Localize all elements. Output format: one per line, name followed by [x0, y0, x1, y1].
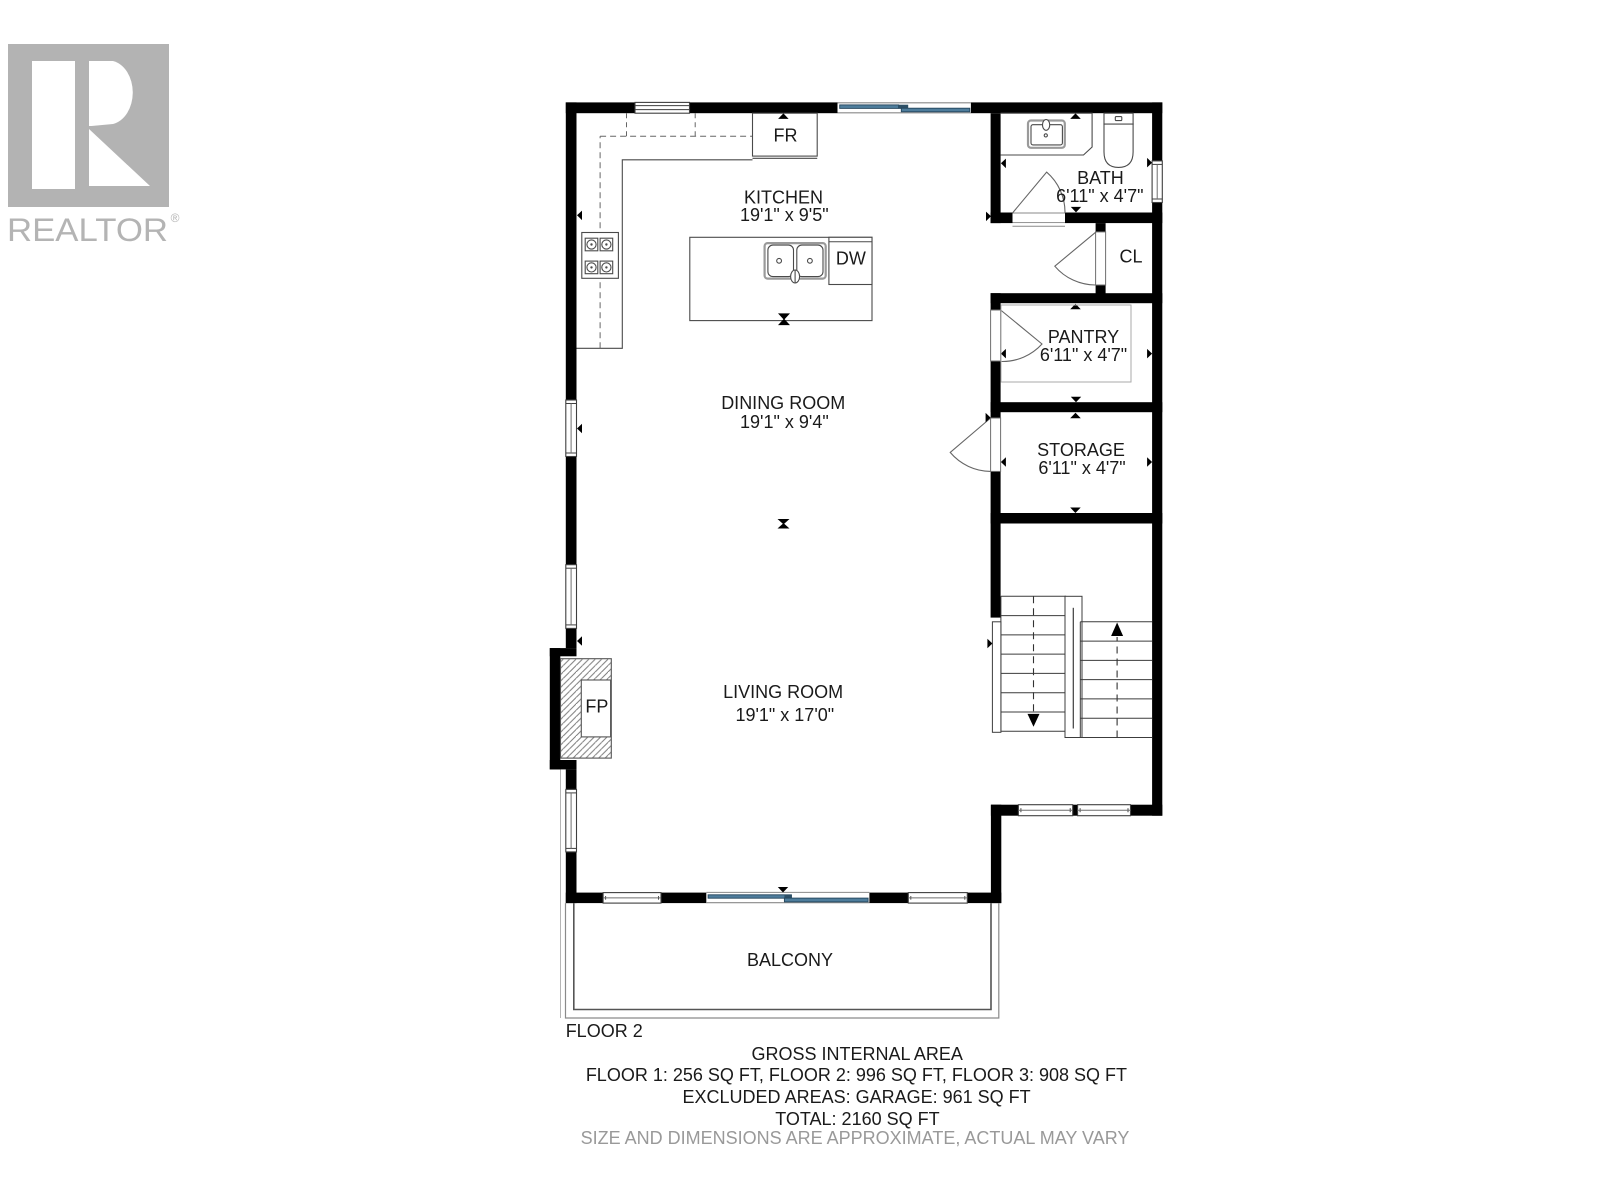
svg-text:REALTOR: REALTOR — [7, 212, 168, 248]
svg-text:FR: FR — [774, 125, 798, 145]
svg-text:19'1" x 9'4": 19'1" x 9'4" — [740, 412, 829, 432]
svg-text:FLOOR 2: FLOOR 2 — [566, 1021, 643, 1041]
svg-text:19'1" x 17'0": 19'1" x 17'0" — [735, 705, 834, 725]
svg-text:BALCONY: BALCONY — [747, 950, 833, 970]
svg-text:FP: FP — [585, 697, 608, 717]
svg-text:DINING ROOM: DINING ROOM — [721, 393, 845, 413]
svg-text:6'11" x 4'7": 6'11" x 4'7" — [1040, 345, 1127, 365]
svg-text:DW: DW — [836, 249, 866, 269]
svg-text:LIVING ROOM: LIVING ROOM — [723, 682, 843, 702]
svg-text:6'11" x 4'7": 6'11" x 4'7" — [1056, 186, 1143, 206]
svg-text:®: ® — [171, 211, 180, 225]
svg-text:FLOOR 1: 256 SQ FT, FLOOR 2: 9: FLOOR 1: 256 SQ FT, FLOOR 2: 996 SQ FT, … — [586, 1065, 1127, 1085]
svg-text:19'1" x 9'5": 19'1" x 9'5" — [740, 205, 829, 225]
svg-text:CL: CL — [1119, 247, 1142, 267]
svg-text:GROSS INTERNAL AREA: GROSS INTERNAL AREA — [752, 1044, 963, 1064]
svg-text:SIZE AND DIMENSIONS ARE APPROX: SIZE AND DIMENSIONS ARE APPROXIMATE, ACT… — [581, 1128, 1130, 1148]
svg-text:6'11" x 4'7": 6'11" x 4'7" — [1038, 458, 1125, 478]
svg-text:TOTAL: 2160 SQ FT: TOTAL: 2160 SQ FT — [775, 1109, 939, 1129]
svg-text:EXCLUDED AREAS: GARAGE: 961 SQ: EXCLUDED AREAS: GARAGE: 961 SQ FT — [683, 1087, 1031, 1107]
svg-text:STORAGE: STORAGE — [1037, 440, 1125, 460]
svg-text:PANTRY: PANTRY — [1048, 327, 1119, 347]
